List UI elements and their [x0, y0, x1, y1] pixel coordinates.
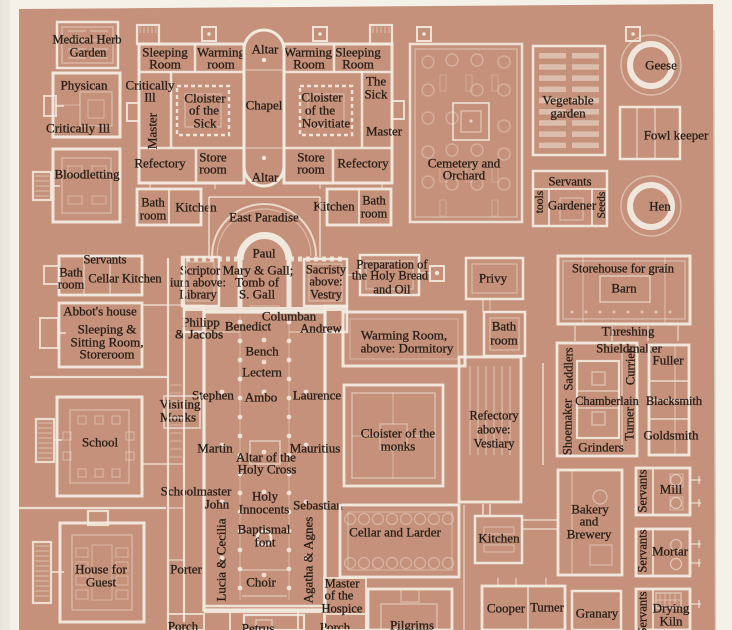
svg-text:Holy Cross: Holy Cross	[238, 461, 297, 476]
svg-text:room: room	[297, 161, 324, 176]
svg-text:Critically Ill: Critically Ill	[46, 120, 110, 135]
svg-text:Geese: Geese	[645, 57, 677, 72]
svg-text:Choir: Choir	[246, 574, 276, 589]
svg-text:Medical Herb: Medical Herb	[52, 32, 121, 46]
svg-text:Fowl keeper: Fowl keeper	[644, 127, 709, 142]
svg-text:Kiln: Kiln	[659, 613, 683, 628]
svg-text:Granary: Granary	[576, 605, 619, 620]
svg-text:Altar: Altar	[252, 169, 279, 184]
svg-text:Petrus: Petrus	[242, 620, 275, 630]
svg-text:and Oil: and Oil	[373, 282, 411, 296]
svg-text:Ambo: Ambo	[245, 389, 278, 404]
svg-text:Bloodletting: Bloodletting	[55, 166, 121, 181]
svg-text:Barn: Barn	[611, 280, 637, 295]
svg-text:Refectory: Refectory	[469, 408, 519, 422]
svg-text:Cellar and Larder: Cellar and Larder	[349, 524, 441, 539]
svg-text:Master: Master	[144, 112, 159, 149]
svg-text:Chamberlain: Chamberlain	[575, 394, 639, 408]
svg-text:room: room	[58, 277, 85, 291]
svg-text:Innocents: Innocents	[239, 501, 290, 516]
svg-text:Paul: Paul	[252, 245, 276, 260]
svg-text:Blacksmith: Blacksmith	[646, 394, 702, 408]
svg-text:Mill: Mill	[660, 481, 683, 496]
svg-text:above:: above:	[477, 422, 510, 436]
svg-text:Privy: Privy	[479, 270, 508, 285]
svg-text:the Holy Bread: the Holy Bread	[352, 268, 429, 282]
svg-text:Bench: Bench	[245, 343, 279, 358]
svg-text:Room: Room	[342, 56, 374, 71]
svg-text:Altar: Altar	[252, 41, 279, 56]
svg-text:room: room	[361, 206, 388, 220]
svg-text:tools: tools	[534, 190, 546, 213]
svg-text:room: room	[140, 208, 167, 222]
svg-text:Gardener: Gardener	[548, 197, 597, 212]
svg-text:Abbot's house: Abbot's house	[63, 303, 137, 318]
svg-text:Servants: Servants	[83, 252, 126, 266]
svg-text:Brewery: Brewery	[567, 526, 612, 541]
svg-text:Turner: Turner	[530, 600, 564, 614]
svg-text:Cellar Kitchen: Cellar Kitchen	[88, 271, 162, 285]
svg-text:Grinders: Grinders	[578, 439, 624, 454]
svg-text:& Jacobs: & Jacobs	[175, 326, 223, 341]
svg-text:Physican: Physican	[61, 77, 108, 92]
svg-text:of the: of the	[325, 588, 354, 602]
svg-text:Pilgrims: Pilgrims	[390, 617, 434, 630]
svg-text:above: Dormitory: above: Dormitory	[361, 340, 454, 355]
svg-text:Room: Room	[293, 56, 325, 71]
svg-text:Hospice: Hospice	[322, 601, 363, 615]
svg-text:Fuller: Fuller	[652, 352, 684, 367]
svg-text:Turner: Turner	[622, 406, 636, 440]
svg-text:Guest: Guest	[86, 574, 117, 589]
svg-text:Martin: Martin	[197, 440, 233, 455]
svg-text:Sick: Sick	[193, 115, 217, 130]
svg-text:room: room	[490, 332, 517, 347]
svg-text:Servants: Servants	[548, 174, 591, 188]
svg-text:Ill: Ill	[144, 89, 156, 104]
svg-text:Vestiary: Vestiary	[474, 436, 516, 450]
svg-text:Refectory: Refectory	[134, 155, 186, 170]
svg-text:Seeds: Seeds	[596, 191, 608, 218]
svg-text:Lucia & Cecilia: Lucia & Cecilia	[213, 518, 228, 601]
svg-text:garden: garden	[550, 105, 586, 120]
svg-text:room: room	[199, 161, 226, 176]
svg-text:Threshing: Threshing	[602, 323, 655, 338]
svg-text:Garden: Garden	[70, 45, 108, 59]
svg-text:monks: monks	[381, 438, 416, 453]
svg-text:Servants: Servants	[635, 529, 649, 572]
svg-text:Room: Room	[149, 56, 181, 71]
svg-text:Kitchen: Kitchen	[478, 530, 520, 545]
svg-text:Lectern: Lectern	[242, 364, 282, 379]
svg-text:Refectory: Refectory	[337, 155, 389, 170]
svg-text:Vestry: Vestry	[310, 287, 343, 301]
svg-text:Andrew: Andrew	[300, 320, 342, 335]
svg-text:Servants: Servants	[635, 469, 649, 512]
svg-text:Porter: Porter	[170, 561, 202, 576]
svg-text:Servants: Servants	[635, 591, 649, 630]
svg-text:Shoemaker: Shoemaker	[560, 398, 574, 455]
svg-text:font: font	[255, 534, 276, 549]
svg-text:Bath: Bath	[141, 195, 165, 209]
svg-text:Kitchen: Kitchen	[175, 199, 217, 214]
svg-text:above:: above:	[309, 274, 342, 288]
svg-text:Hen: Hen	[649, 198, 671, 213]
svg-text:Chapel: Chapel	[246, 97, 283, 112]
svg-text:Orchard: Orchard	[443, 167, 486, 182]
svg-text:Bath: Bath	[362, 193, 386, 207]
svg-text:Sick: Sick	[364, 86, 388, 101]
svg-text:Storehouse for grain: Storehouse for grain	[572, 261, 675, 275]
svg-text:Master: Master	[366, 123, 403, 138]
svg-text:Laurence: Laurence	[293, 387, 342, 402]
svg-text:Mauritius: Mauritius	[290, 440, 341, 455]
svg-text:Saddlers: Saddlers	[561, 347, 575, 390]
svg-text:Mortar: Mortar	[652, 543, 689, 558]
svg-text:S. Gall: S. Gall	[239, 286, 276, 301]
svg-text:room: room	[207, 56, 234, 71]
svg-text:Agatha & Agnes: Agatha & Agnes	[300, 517, 315, 604]
svg-text:School: School	[82, 434, 119, 449]
svg-text:Sebastian: Sebastian	[293, 497, 343, 512]
svg-text:Storeroom: Storeroom	[80, 346, 135, 361]
svg-text:Bath: Bath	[492, 318, 517, 333]
svg-text:East Paradise: East Paradise	[229, 209, 299, 224]
svg-text:Novitiate: Novitiate	[302, 115, 351, 130]
svg-text:Goldsmith: Goldsmith	[644, 427, 699, 442]
svg-text:Cooper: Cooper	[487, 600, 526, 615]
svg-text:Currier: Currier	[623, 348, 637, 385]
svg-text:John: John	[205, 496, 230, 511]
